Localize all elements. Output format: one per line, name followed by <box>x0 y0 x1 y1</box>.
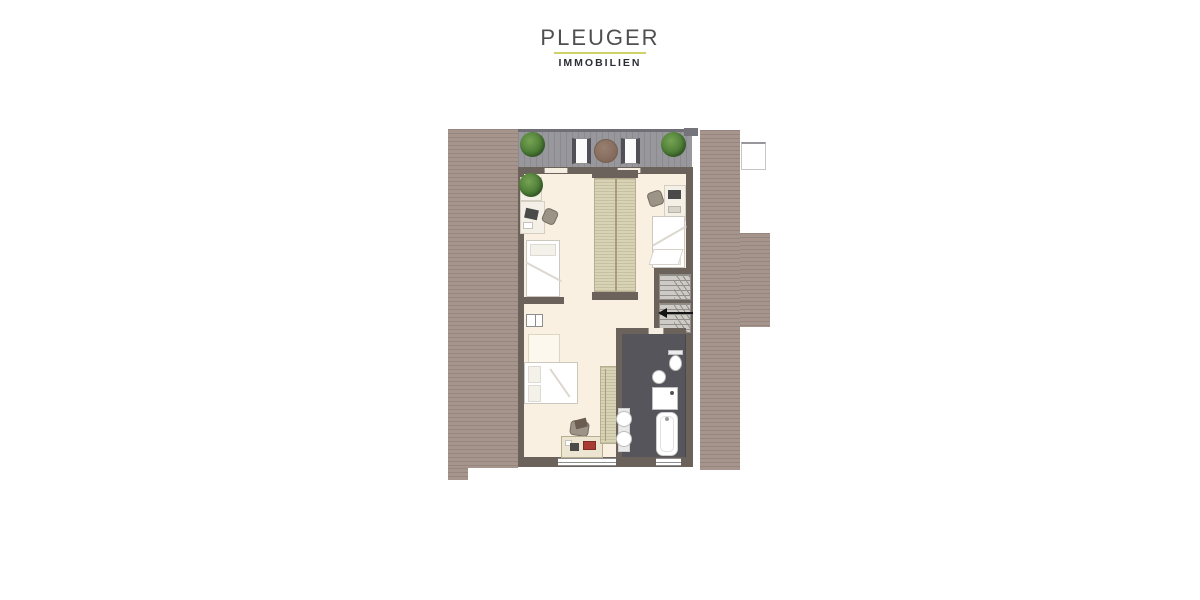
wardrobe-wall-cap-bottom <box>592 292 638 300</box>
floor-plan <box>448 127 772 483</box>
balcony-chair-left-icon <box>572 138 591 164</box>
balcony-chair-right-icon <box>621 138 640 164</box>
roof-left <box>448 129 518 468</box>
stair-arrow-shaft <box>666 312 693 314</box>
knee-wall-window <box>526 314 543 327</box>
bathtub-icon <box>656 412 678 456</box>
shower-drain-icon <box>670 391 674 395</box>
bed-upper-left-icon <box>526 240 560 297</box>
wardrobe-wall-cap-top <box>592 170 638 178</box>
papers-icon <box>523 222 533 229</box>
page: PLEUGER IMMOBILIEN <box>0 0 1200 600</box>
monitor-icon <box>668 190 681 199</box>
shower-icon <box>652 387 678 410</box>
floor-skylight-outline <box>528 334 560 363</box>
roof-right-extension <box>740 233 770 327</box>
balcony-railing-stub <box>684 128 698 136</box>
roof-right <box>700 130 740 470</box>
balcony-plant-right-icon <box>661 132 686 157</box>
brand-tagline: IMMOBILIEN <box>559 58 642 69</box>
window-bottom-right <box>656 458 681 466</box>
bed-lower-left-icon <box>524 362 578 404</box>
brand-underline <box>554 52 646 54</box>
washbasin-1-icon <box>616 411 632 427</box>
balcony-plant-left-icon <box>520 132 545 157</box>
balcony-door-left <box>544 168 568 173</box>
dormer-outline <box>741 142 766 170</box>
brand-name: PLEUGER <box>540 27 659 49</box>
book-stack-icon <box>583 441 596 450</box>
wall-mid-left <box>518 297 564 304</box>
stair-flight-upper <box>659 274 691 300</box>
corner-washbasin-icon <box>652 370 666 384</box>
room-plant-icon <box>519 173 543 197</box>
wardrobe-central-icon <box>594 178 636 292</box>
brand-logo: PLEUGER IMMOBILIEN <box>0 27 1200 69</box>
toilet-icon <box>669 355 682 371</box>
washbasin-2-icon <box>616 431 632 447</box>
window-bottom-left <box>558 458 616 466</box>
desk-drawer-icon <box>668 206 681 213</box>
roof-left-extension <box>448 468 468 480</box>
roof-window-above-stairs <box>648 249 683 265</box>
balcony-table-icon <box>594 139 618 163</box>
typewriter-icon <box>570 443 579 451</box>
